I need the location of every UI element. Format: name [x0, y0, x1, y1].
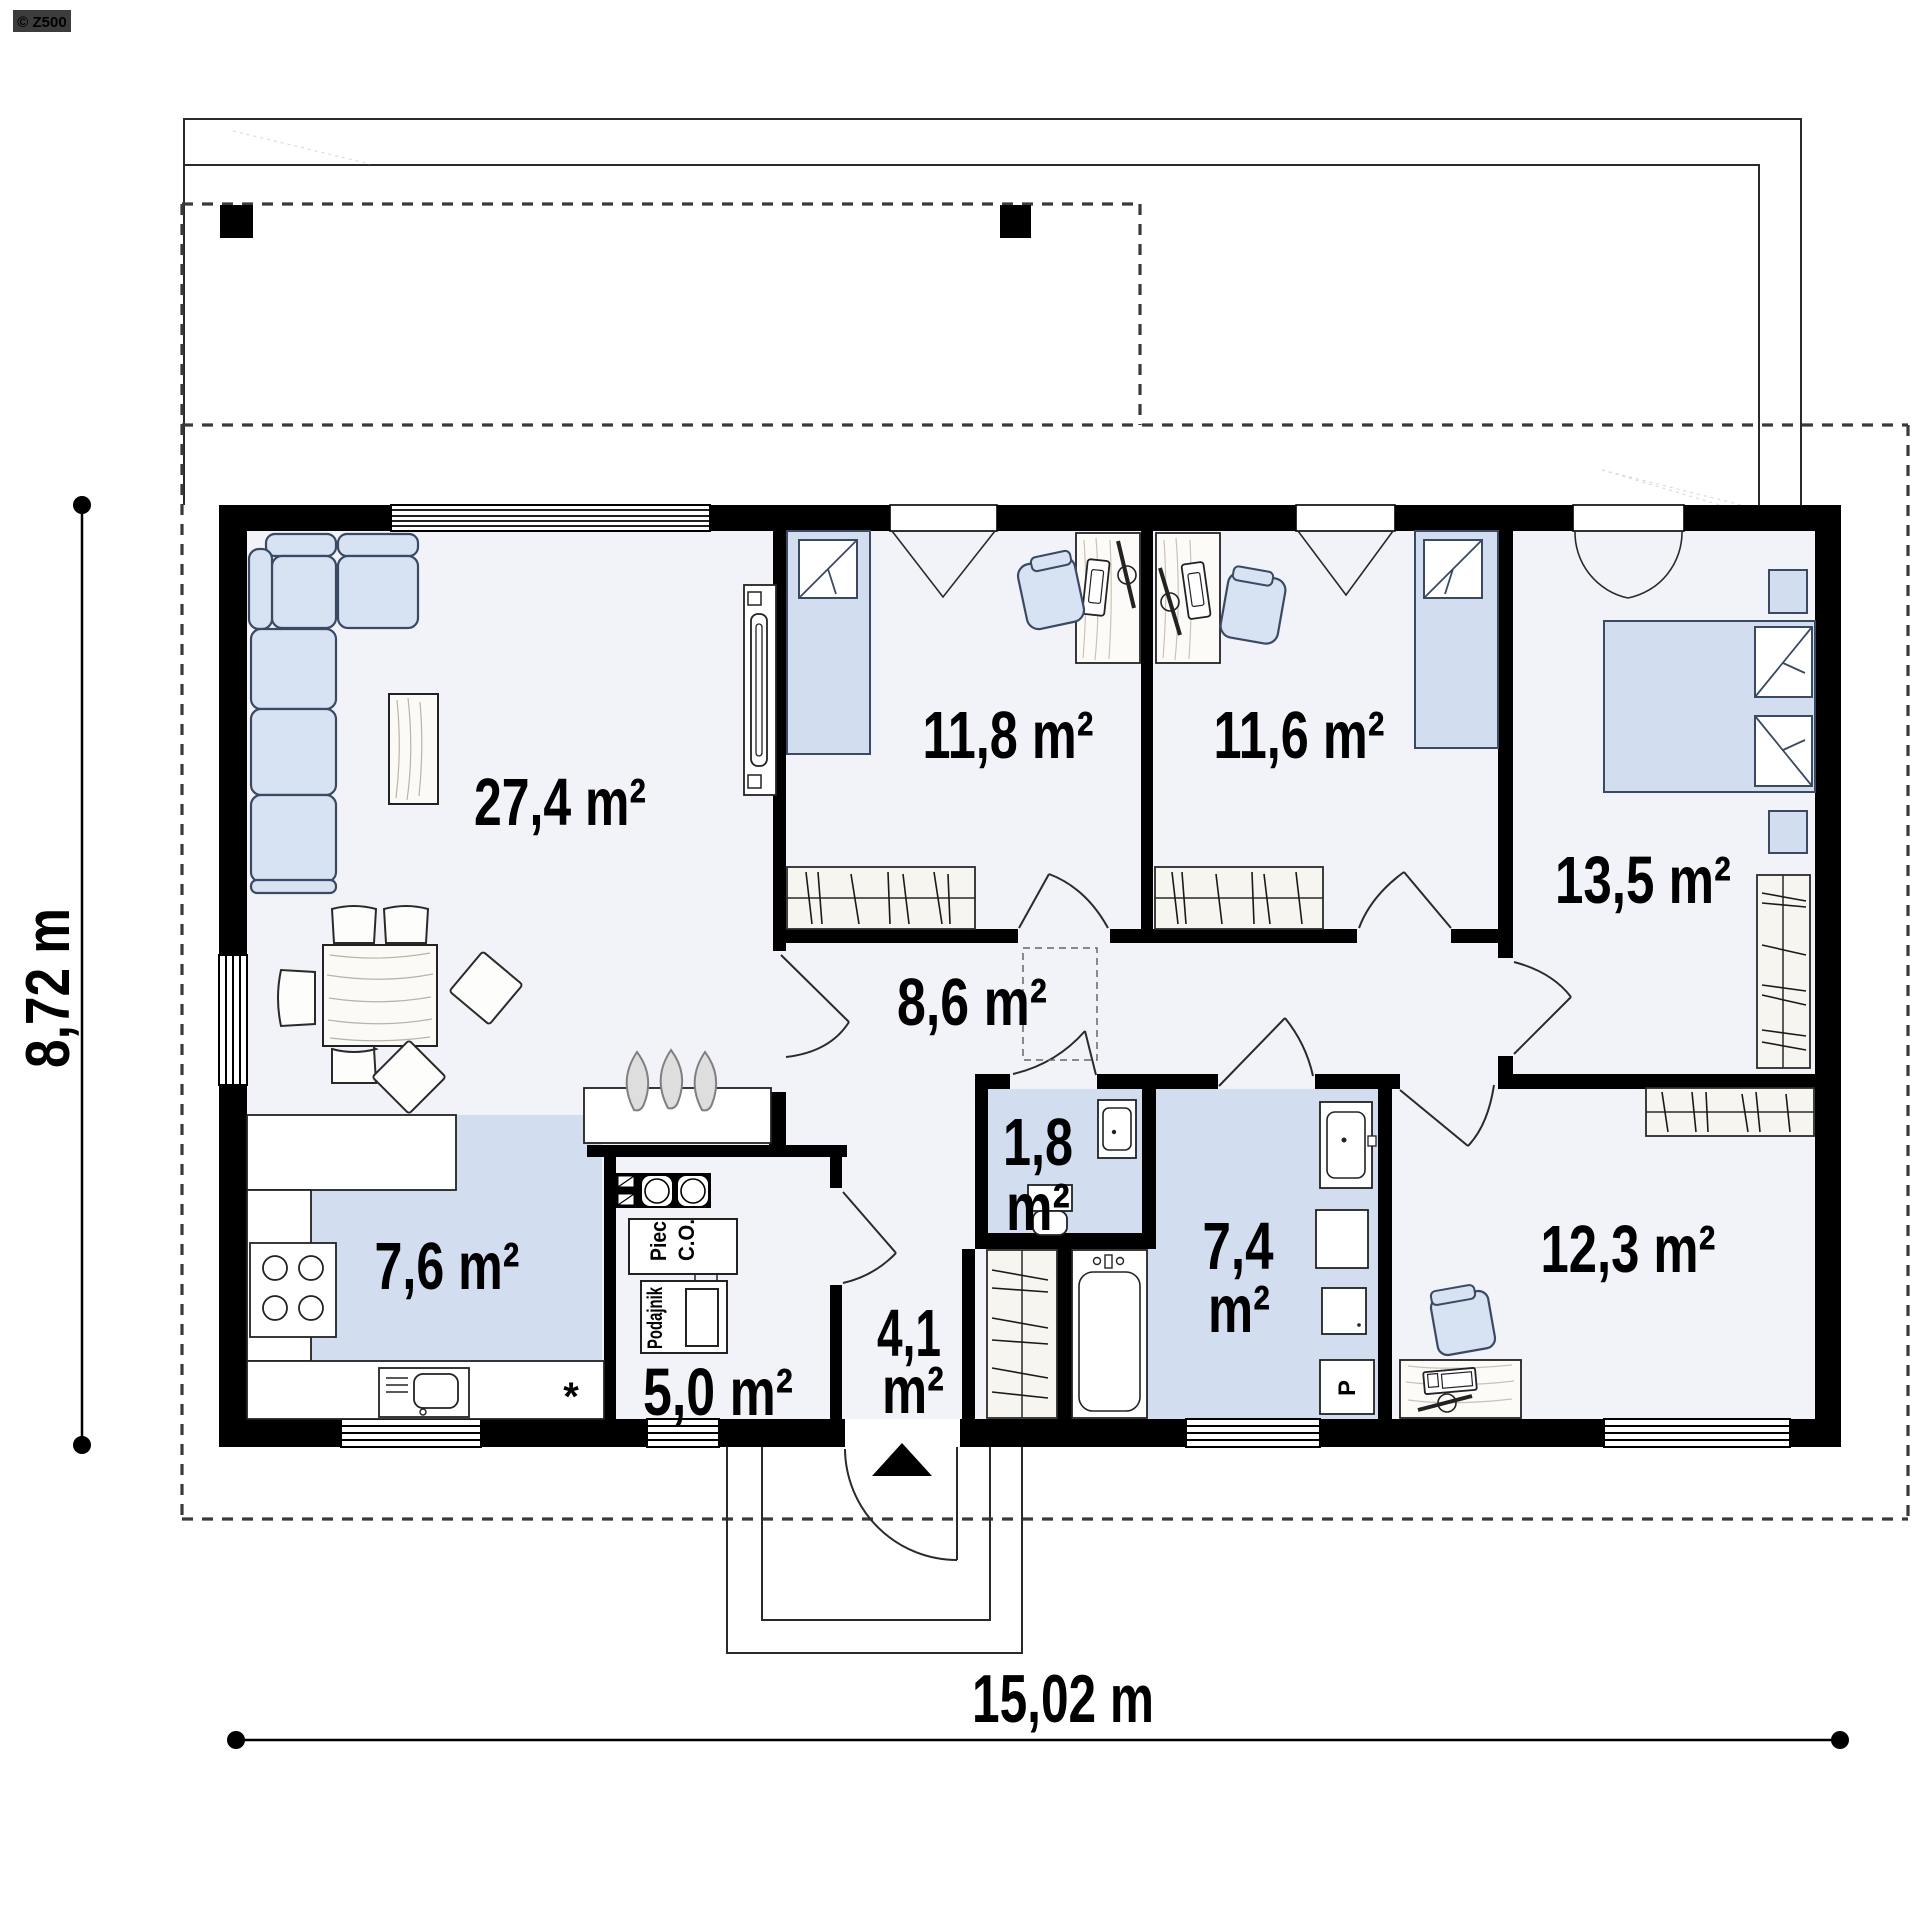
svg-text:© Z500: © Z500: [17, 14, 66, 31]
svg-text:12,3 m²: 12,3 m²: [1541, 1212, 1716, 1287]
svg-text:m²: m²: [1208, 1272, 1270, 1347]
svg-text:1,8: 1,8: [1003, 1105, 1073, 1180]
svg-text:Piec: Piec: [646, 1221, 671, 1261]
svg-text:C.O.: C.O.: [674, 1219, 699, 1261]
svg-text:15,02 m: 15,02 m: [972, 1661, 1154, 1737]
svg-text:11,6 m²: 11,6 m²: [1214, 698, 1385, 773]
svg-text:*: *: [563, 1375, 579, 1419]
svg-text:8,72 m: 8,72 m: [14, 908, 83, 1068]
svg-text:11,8 m²: 11,8 m²: [923, 698, 1094, 773]
svg-text:m²: m²: [1006, 1170, 1070, 1245]
svg-text:5,0 m²: 5,0 m²: [643, 1355, 793, 1430]
svg-text:27,4 m²: 27,4 m²: [474, 765, 646, 840]
svg-text:8,6 m²: 8,6 m²: [897, 965, 1047, 1040]
svg-text:7,6 m²: 7,6 m²: [375, 1229, 520, 1304]
svg-text:Podajnik: Podajnik: [644, 1287, 667, 1349]
svg-text:13,5 m²: 13,5 m²: [1555, 843, 1731, 918]
svg-text:P: P: [1334, 1380, 1361, 1396]
svg-text:m²: m²: [882, 1353, 944, 1428]
